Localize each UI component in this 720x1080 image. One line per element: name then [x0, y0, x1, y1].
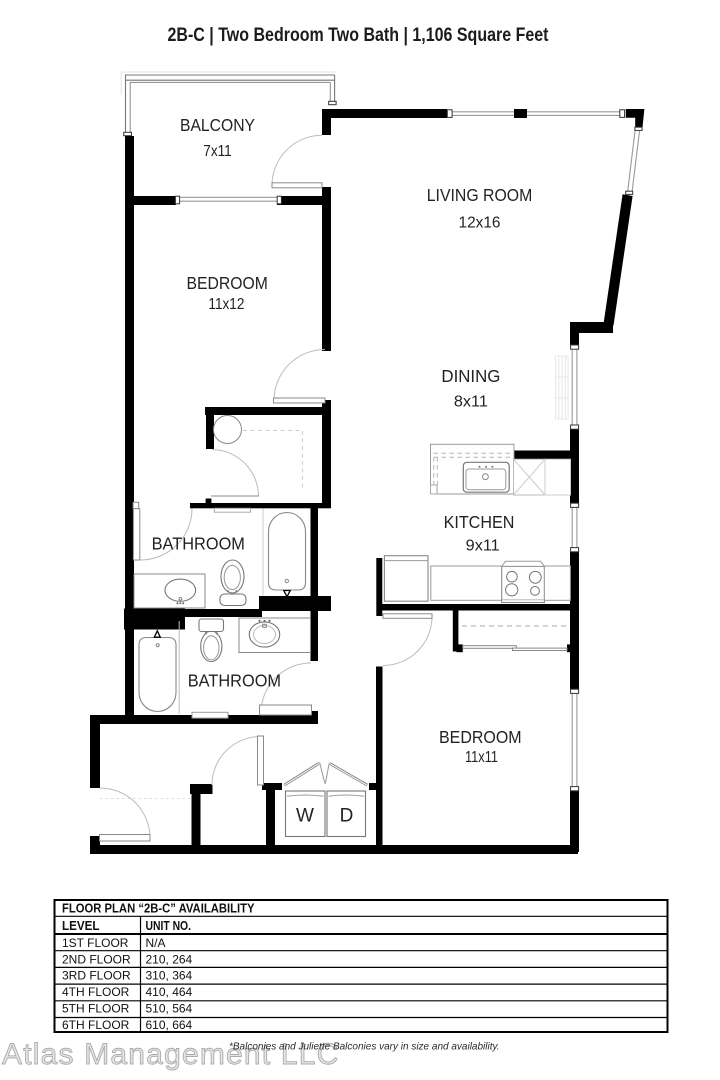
svg-text:LEVEL: LEVEL [62, 919, 100, 933]
svg-text:510, 564: 510, 564 [146, 1001, 193, 1015]
svg-text:7x11: 7x11 [203, 143, 232, 160]
svg-text:9x11: 9x11 [466, 538, 500, 555]
svg-text:11x11: 11x11 [465, 749, 498, 766]
svg-text:210, 264: 210, 264 [146, 952, 193, 966]
svg-text:W: W [296, 806, 314, 827]
svg-text:LIVING ROOM: LIVING ROOM [427, 185, 533, 205]
svg-text:3RD FLOOR: 3RD FLOOR [62, 969, 131, 983]
svg-text:2ND FLOOR: 2ND FLOOR [62, 952, 131, 966]
svg-text:6TH FLOOR: 6TH FLOOR [62, 1018, 130, 1032]
svg-text:D: D [340, 806, 354, 827]
svg-text:BATHROOM: BATHROOM [188, 671, 281, 691]
svg-text:2B-C | Two Bedroom Two Bath |: 2B-C | Two Bedroom Two Bath | 1,106 Squa… [168, 25, 550, 46]
svg-text:BEDROOM: BEDROOM [439, 727, 522, 747]
svg-text:UNIT NO.: UNIT NO. [146, 919, 192, 933]
svg-text:DINING: DINING [441, 366, 500, 386]
svg-text:FLOOR PLAN “2B-C” AVAILABILITY: FLOOR PLAN “2B-C” AVAILABILITY [62, 902, 255, 916]
svg-text:4TH FLOOR: 4TH FLOOR [62, 985, 130, 999]
svg-text:BEDROOM: BEDROOM [187, 273, 268, 293]
svg-text:5TH FLOOR: 5TH FLOOR [62, 1001, 130, 1015]
svg-text:11x12: 11x12 [208, 296, 244, 313]
svg-text:410, 464: 410, 464 [146, 985, 193, 999]
svg-text:N/A: N/A [146, 936, 166, 950]
svg-text:1ST FLOOR: 1ST FLOOR [62, 936, 129, 950]
svg-text:BATHROOM: BATHROOM [152, 534, 245, 554]
svg-text:*Balconies and Juliette Balcon: *Balconies and Juliette Balconies vary i… [229, 1042, 500, 1053]
svg-text:12x16: 12x16 [459, 215, 501, 232]
svg-text:KITCHEN: KITCHEN [444, 512, 515, 532]
svg-text:610, 664: 610, 664 [146, 1018, 193, 1032]
svg-text:BALCONY: BALCONY [180, 115, 255, 135]
svg-text:8x11: 8x11 [454, 394, 488, 411]
svg-text:310, 364: 310, 364 [146, 969, 193, 983]
